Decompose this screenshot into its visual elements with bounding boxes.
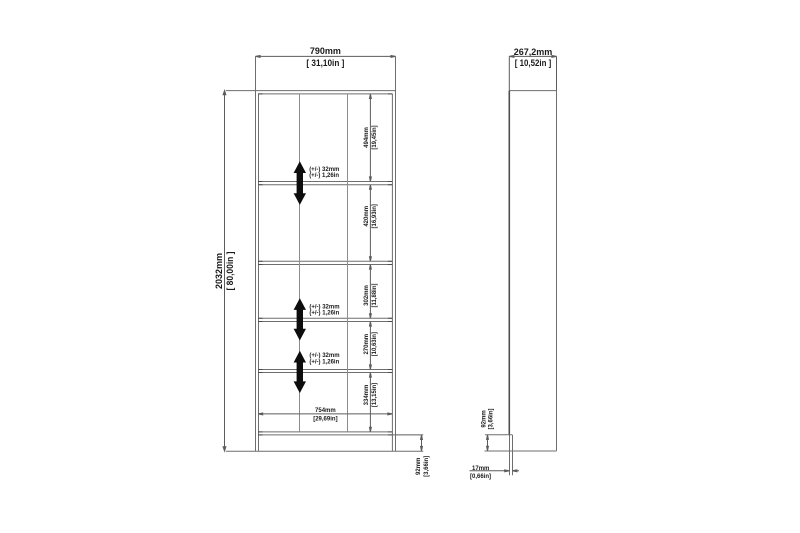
svg-text:[10,63in]: [10,63in]	[372, 332, 378, 356]
svg-text:790mm: 790mm	[310, 46, 341, 56]
svg-text:[3,66in]: [3,66in]	[424, 456, 430, 477]
svg-text:334mm: 334mm	[364, 385, 370, 406]
svg-text:494mm: 494mm	[364, 127, 370, 148]
svg-text:[3,66in]: [3,66in]	[489, 408, 495, 429]
svg-text:[ 10,52in ]: [ 10,52in ]	[515, 58, 552, 68]
svg-text:[0,66in]: [0,66in]	[470, 474, 491, 480]
svg-text:[ 31,10in ]: [ 31,10in ]	[306, 58, 344, 68]
svg-text:[13,15in]: [13,15in]	[372, 383, 378, 407]
svg-text:302mm: 302mm	[364, 285, 370, 306]
svg-text:270mm: 270mm	[364, 334, 370, 355]
svg-text:[ 80,00in ]: [ 80,00in ]	[225, 251, 235, 290]
svg-text:(+/-) 32mm: (+/-) 32mm	[309, 304, 339, 310]
svg-text:[11,88in]: [11,88in]	[372, 283, 378, 307]
svg-text:(+/-) 1,26in: (+/-) 1,26in	[309, 173, 339, 179]
svg-text:(+/-) 32mm: (+/-) 32mm	[309, 167, 339, 173]
svg-text:92mm: 92mm	[482, 410, 488, 427]
svg-text:754mm: 754mm	[315, 408, 336, 414]
svg-text:92mm: 92mm	[416, 458, 422, 475]
svg-text:(+/-) 32mm: (+/-) 32mm	[309, 353, 339, 359]
svg-text:(+/-) 1,26in: (+/-) 1,26in	[309, 359, 339, 365]
svg-text:420mm: 420mm	[364, 206, 370, 227]
svg-text:(+/-) 1,26in: (+/-) 1,26in	[309, 311, 339, 317]
svg-text:[29,69in]: [29,69in]	[313, 417, 337, 423]
svg-text:[19,45in]: [19,45in]	[372, 125, 378, 149]
svg-text:2032mm: 2032mm	[214, 253, 224, 289]
svg-text:17mm: 17mm	[472, 466, 489, 472]
svg-text:267,2mm: 267,2mm	[514, 47, 553, 57]
svg-text:[16,93in]: [16,93in]	[372, 204, 378, 228]
